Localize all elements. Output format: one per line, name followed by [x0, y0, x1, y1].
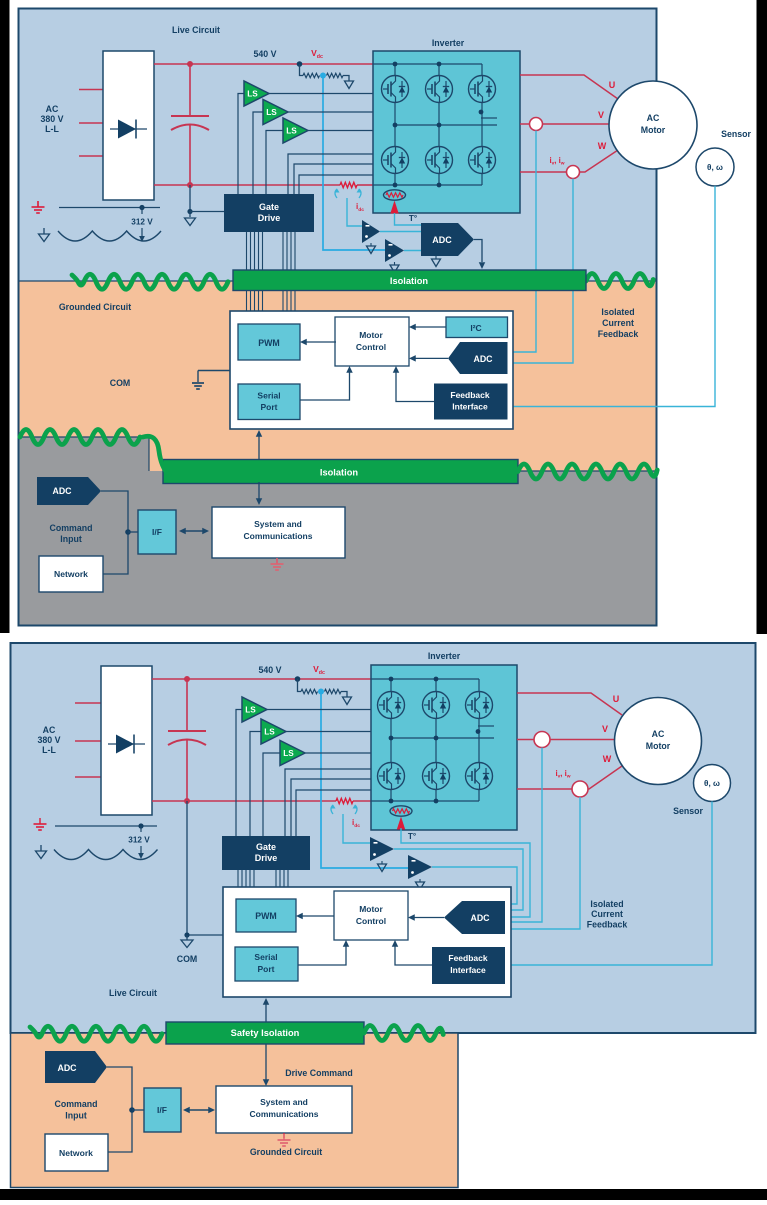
svg-text:Command: Command: [49, 523, 92, 533]
svg-text:Gate: Gate: [259, 202, 279, 212]
svg-text:Port: Port: [261, 402, 278, 412]
svg-text:Drive: Drive: [258, 213, 281, 223]
svg-text:Motor: Motor: [646, 741, 671, 751]
svg-text:312 V: 312 V: [131, 218, 153, 227]
svg-text:Drive: Drive: [255, 853, 278, 863]
svg-text:Gate: Gate: [256, 842, 276, 852]
svg-text:Feedback: Feedback: [448, 953, 487, 963]
svg-text:Current: Current: [591, 909, 623, 919]
svg-text:T°: T°: [408, 832, 416, 841]
svg-text:AC: AC: [46, 104, 59, 114]
svg-text:Serial: Serial: [257, 391, 280, 401]
svg-text:Motor: Motor: [641, 125, 666, 135]
svg-text:Input: Input: [60, 534, 82, 544]
svg-text:Live Circuit: Live Circuit: [172, 25, 220, 35]
svg-text:T°: T°: [409, 214, 417, 223]
svg-text:AC: AC: [43, 725, 56, 735]
svg-text:L-L: L-L: [45, 124, 59, 134]
svg-text:Communications: Communications: [250, 1109, 319, 1119]
svg-text:System and: System and: [260, 1097, 308, 1107]
svg-text:Safety Isolation: Safety Isolation: [231, 1028, 300, 1038]
svg-text:I/F: I/F: [152, 527, 162, 537]
svg-text:Sensor: Sensor: [673, 806, 703, 816]
svg-text:Control: Control: [356, 342, 386, 352]
svg-text:Motor: Motor: [359, 330, 383, 340]
svg-text:Network: Network: [54, 569, 88, 579]
svg-text:540 V: 540 V: [254, 49, 277, 59]
svg-text:PWM: PWM: [255, 911, 277, 921]
svg-text:ADC: ADC: [470, 913, 490, 923]
svg-text:V: V: [598, 110, 604, 120]
svg-text:U: U: [609, 80, 616, 90]
svg-text:Isolation: Isolation: [320, 468, 359, 478]
svg-text:Sensor: Sensor: [721, 129, 751, 139]
svg-text:Isolated: Isolated: [590, 899, 623, 909]
svg-text:Command: Command: [54, 1099, 97, 1109]
svg-text:LS: LS: [266, 108, 277, 117]
svg-text:LS: LS: [283, 749, 294, 758]
svg-text:380 V: 380 V: [41, 114, 64, 124]
svg-text:Current: Current: [602, 318, 634, 328]
svg-text:I/F: I/F: [157, 1105, 167, 1115]
svg-text:ADC: ADC: [473, 354, 493, 364]
svg-text:Feedback: Feedback: [450, 390, 489, 400]
svg-text:Drive Command: Drive Command: [285, 1068, 352, 1078]
svg-text:PWM: PWM: [258, 338, 280, 348]
svg-text:Grounded Circuit: Grounded Circuit: [59, 302, 131, 312]
svg-text:System and: System and: [254, 519, 302, 529]
svg-text:LS: LS: [247, 90, 258, 99]
svg-text:COM: COM: [177, 954, 198, 964]
svg-text:Isolated: Isolated: [601, 307, 634, 317]
svg-text:Serial: Serial: [254, 952, 277, 962]
svg-text:LS: LS: [286, 127, 297, 136]
svg-text:Input: Input: [65, 1111, 87, 1121]
svg-text:ADC: ADC: [52, 486, 72, 496]
svg-text:LS: LS: [264, 728, 275, 737]
svg-text:I²C: I²C: [470, 323, 481, 333]
svg-text:Port: Port: [258, 964, 275, 974]
svg-text:Interface: Interface: [450, 965, 486, 975]
svg-text:Inverter: Inverter: [432, 38, 465, 48]
svg-text:Network: Network: [59, 1148, 93, 1158]
svg-text:V: V: [602, 724, 608, 734]
svg-text:Interface: Interface: [452, 402, 488, 412]
svg-text:Live Circuit: Live Circuit: [109, 988, 157, 998]
svg-text:540 V: 540 V: [259, 665, 282, 675]
svg-text:W: W: [598, 141, 607, 151]
svg-text:Isolation: Isolation: [390, 276, 429, 286]
svg-text:Feedback: Feedback: [587, 920, 628, 930]
svg-text:L-L: L-L: [42, 745, 56, 755]
svg-text:COM: COM: [110, 378, 131, 388]
svg-text:AC: AC: [647, 113, 660, 123]
svg-text:Inverter: Inverter: [428, 651, 461, 661]
svg-text:W: W: [603, 754, 612, 764]
svg-text:U: U: [613, 694, 620, 704]
svg-text:LS: LS: [245, 706, 256, 715]
svg-text:Grounded Circuit: Grounded Circuit: [250, 1147, 322, 1157]
svg-text:θ, ω: θ, ω: [704, 779, 720, 788]
svg-text:AC: AC: [652, 729, 665, 739]
svg-text:ADC: ADC: [432, 235, 452, 245]
svg-text:312 V: 312 V: [128, 836, 150, 845]
svg-text:Communications: Communications: [244, 531, 313, 541]
svg-text:Feedback: Feedback: [598, 329, 639, 339]
svg-text:Control: Control: [356, 916, 386, 926]
svg-text:θ, ω: θ, ω: [707, 163, 723, 172]
svg-text:380 V: 380 V: [38, 735, 61, 745]
svg-text:Motor: Motor: [359, 904, 383, 914]
svg-text:ADC: ADC: [57, 1063, 77, 1073]
